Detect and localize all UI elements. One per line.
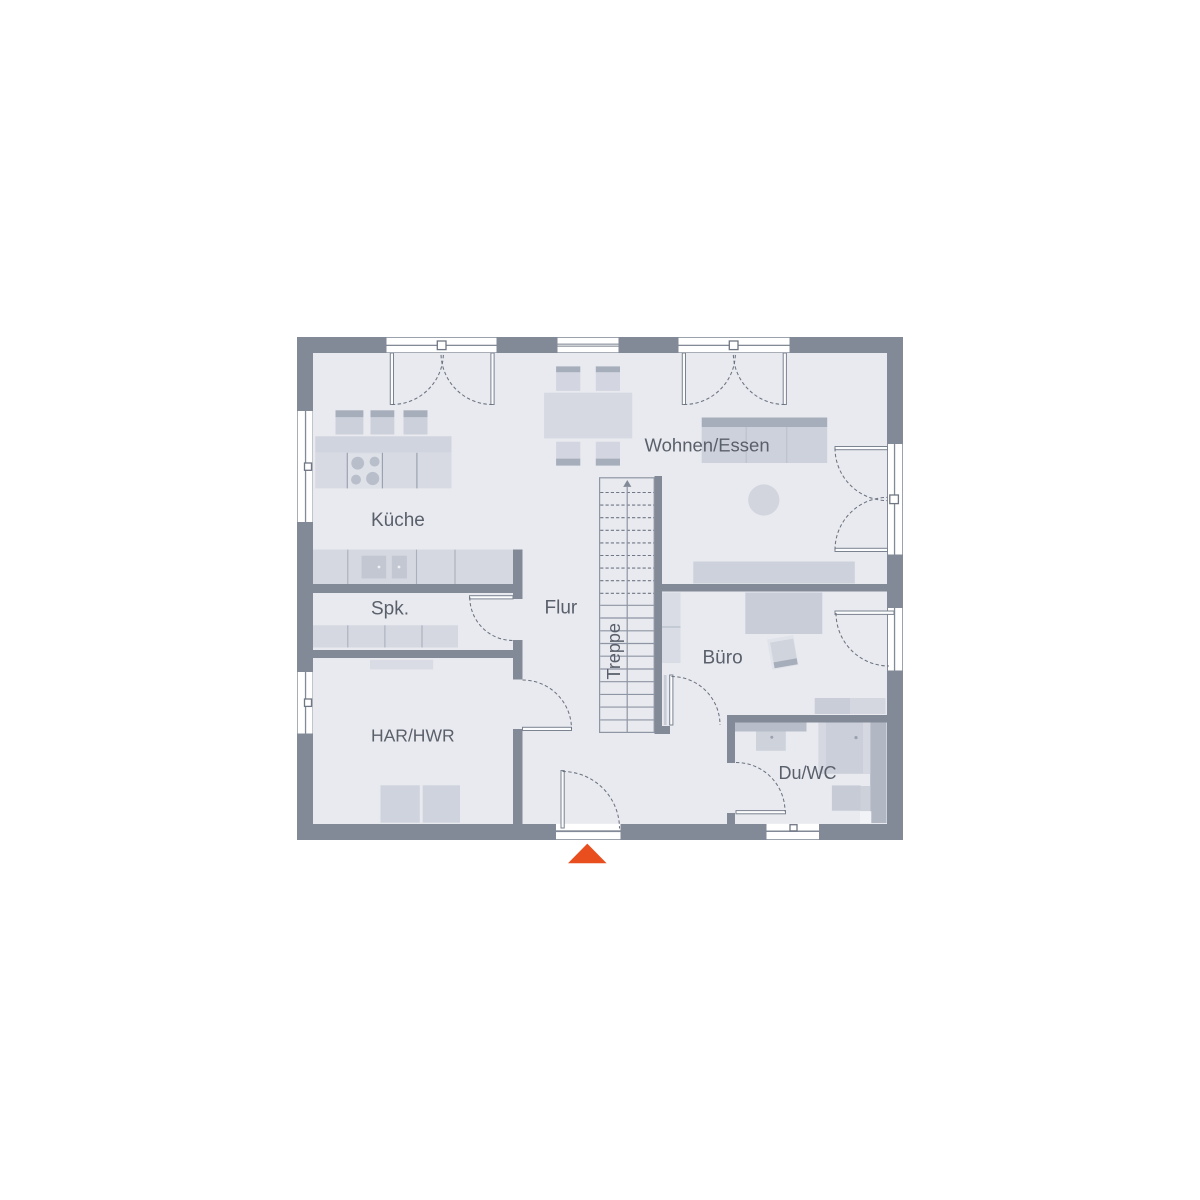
svg-text:Küche: Küche: [371, 510, 425, 531]
svg-text:Treppe: Treppe: [604, 623, 624, 679]
svg-text:Büro: Büro: [703, 648, 743, 669]
svg-text:Wohnen/Essen: Wohnen/Essen: [645, 435, 770, 456]
svg-text:Du/WC: Du/WC: [779, 763, 837, 783]
svg-text:Flur: Flur: [545, 598, 578, 619]
svg-text:Spk.: Spk.: [371, 598, 409, 619]
svg-text:HAR/HWR: HAR/HWR: [371, 726, 455, 746]
